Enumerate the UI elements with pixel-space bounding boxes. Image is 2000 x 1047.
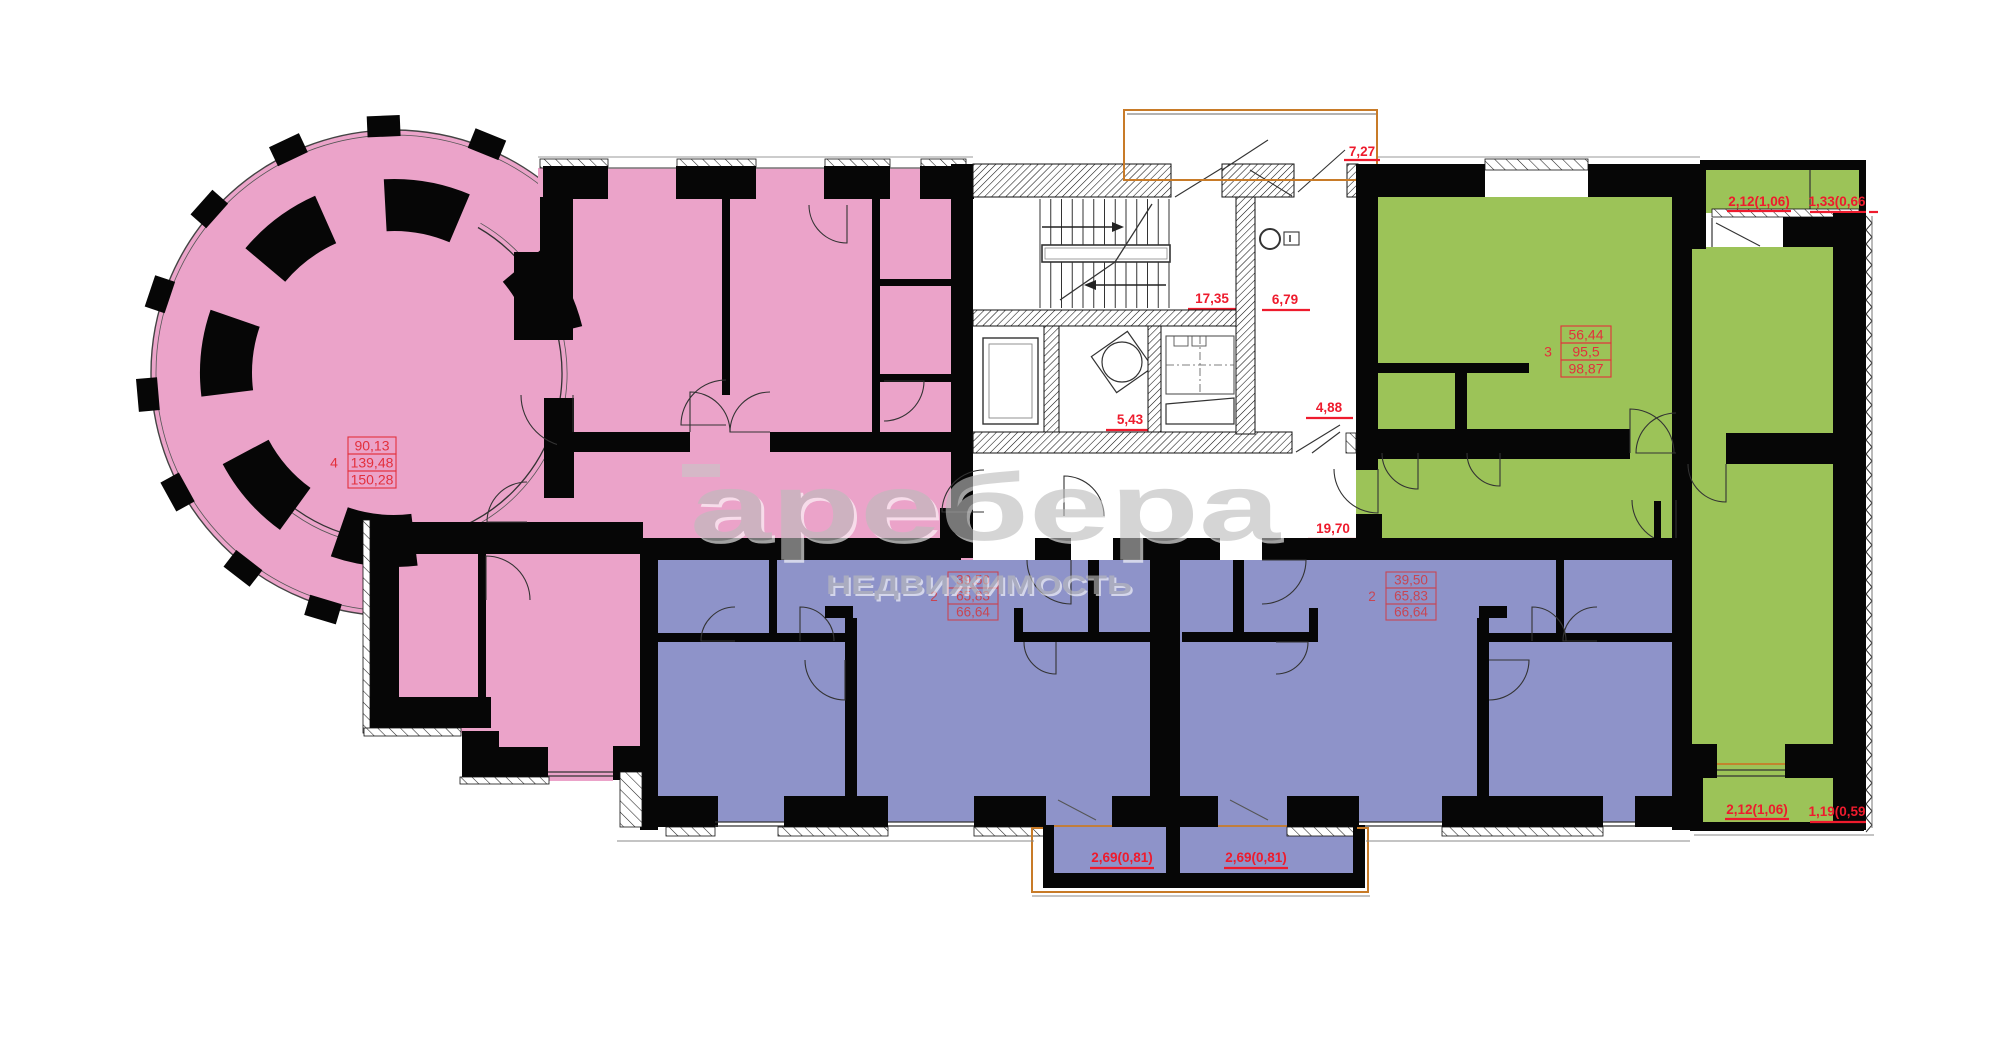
svg-text:150,28: 150,28 — [351, 472, 394, 488]
svg-text:НЕДВИЖИМОСТЬ: НЕДВИЖИМОСТЬ — [826, 570, 1132, 600]
svg-text:6,79: 6,79 — [1272, 292, 1298, 307]
svg-text:аребера: аребера — [690, 455, 1282, 561]
svg-text:39,50: 39,50 — [1394, 573, 1428, 588]
svg-text:2: 2 — [1368, 589, 1376, 604]
svg-text:139,48: 139,48 — [351, 455, 394, 471]
svg-text:95,5: 95,5 — [1572, 344, 1599, 360]
svg-text:2,69(0,81): 2,69(0,81) — [1091, 850, 1153, 865]
svg-text:1,19(0,59: 1,19(0,59 — [1808, 804, 1865, 819]
svg-text:2,69(0,81): 2,69(0,81) — [1225, 850, 1287, 865]
svg-text:7,27: 7,27 — [1349, 144, 1375, 159]
svg-text:17,35: 17,35 — [1195, 291, 1229, 306]
svg-text:2,12(1,06): 2,12(1,06) — [1726, 802, 1788, 817]
svg-text:3: 3 — [1544, 344, 1552, 360]
svg-text:4: 4 — [330, 455, 338, 471]
svg-text:66,64: 66,64 — [956, 605, 990, 620]
svg-text:90,13: 90,13 — [354, 438, 389, 454]
svg-text:56,44: 56,44 — [1568, 327, 1603, 343]
svg-text:4,88: 4,88 — [1316, 400, 1343, 415]
svg-text:5,43: 5,43 — [1117, 412, 1144, 427]
svg-text:2,12(1,06): 2,12(1,06) — [1728, 194, 1790, 209]
svg-text:19,70: 19,70 — [1316, 521, 1350, 536]
svg-text:98,87: 98,87 — [1568, 361, 1603, 377]
svg-text:1,33(0,66: 1,33(0,66 — [1808, 194, 1866, 209]
svg-text:66,64: 66,64 — [1394, 605, 1428, 620]
svg-text:65,83: 65,83 — [1394, 589, 1428, 604]
